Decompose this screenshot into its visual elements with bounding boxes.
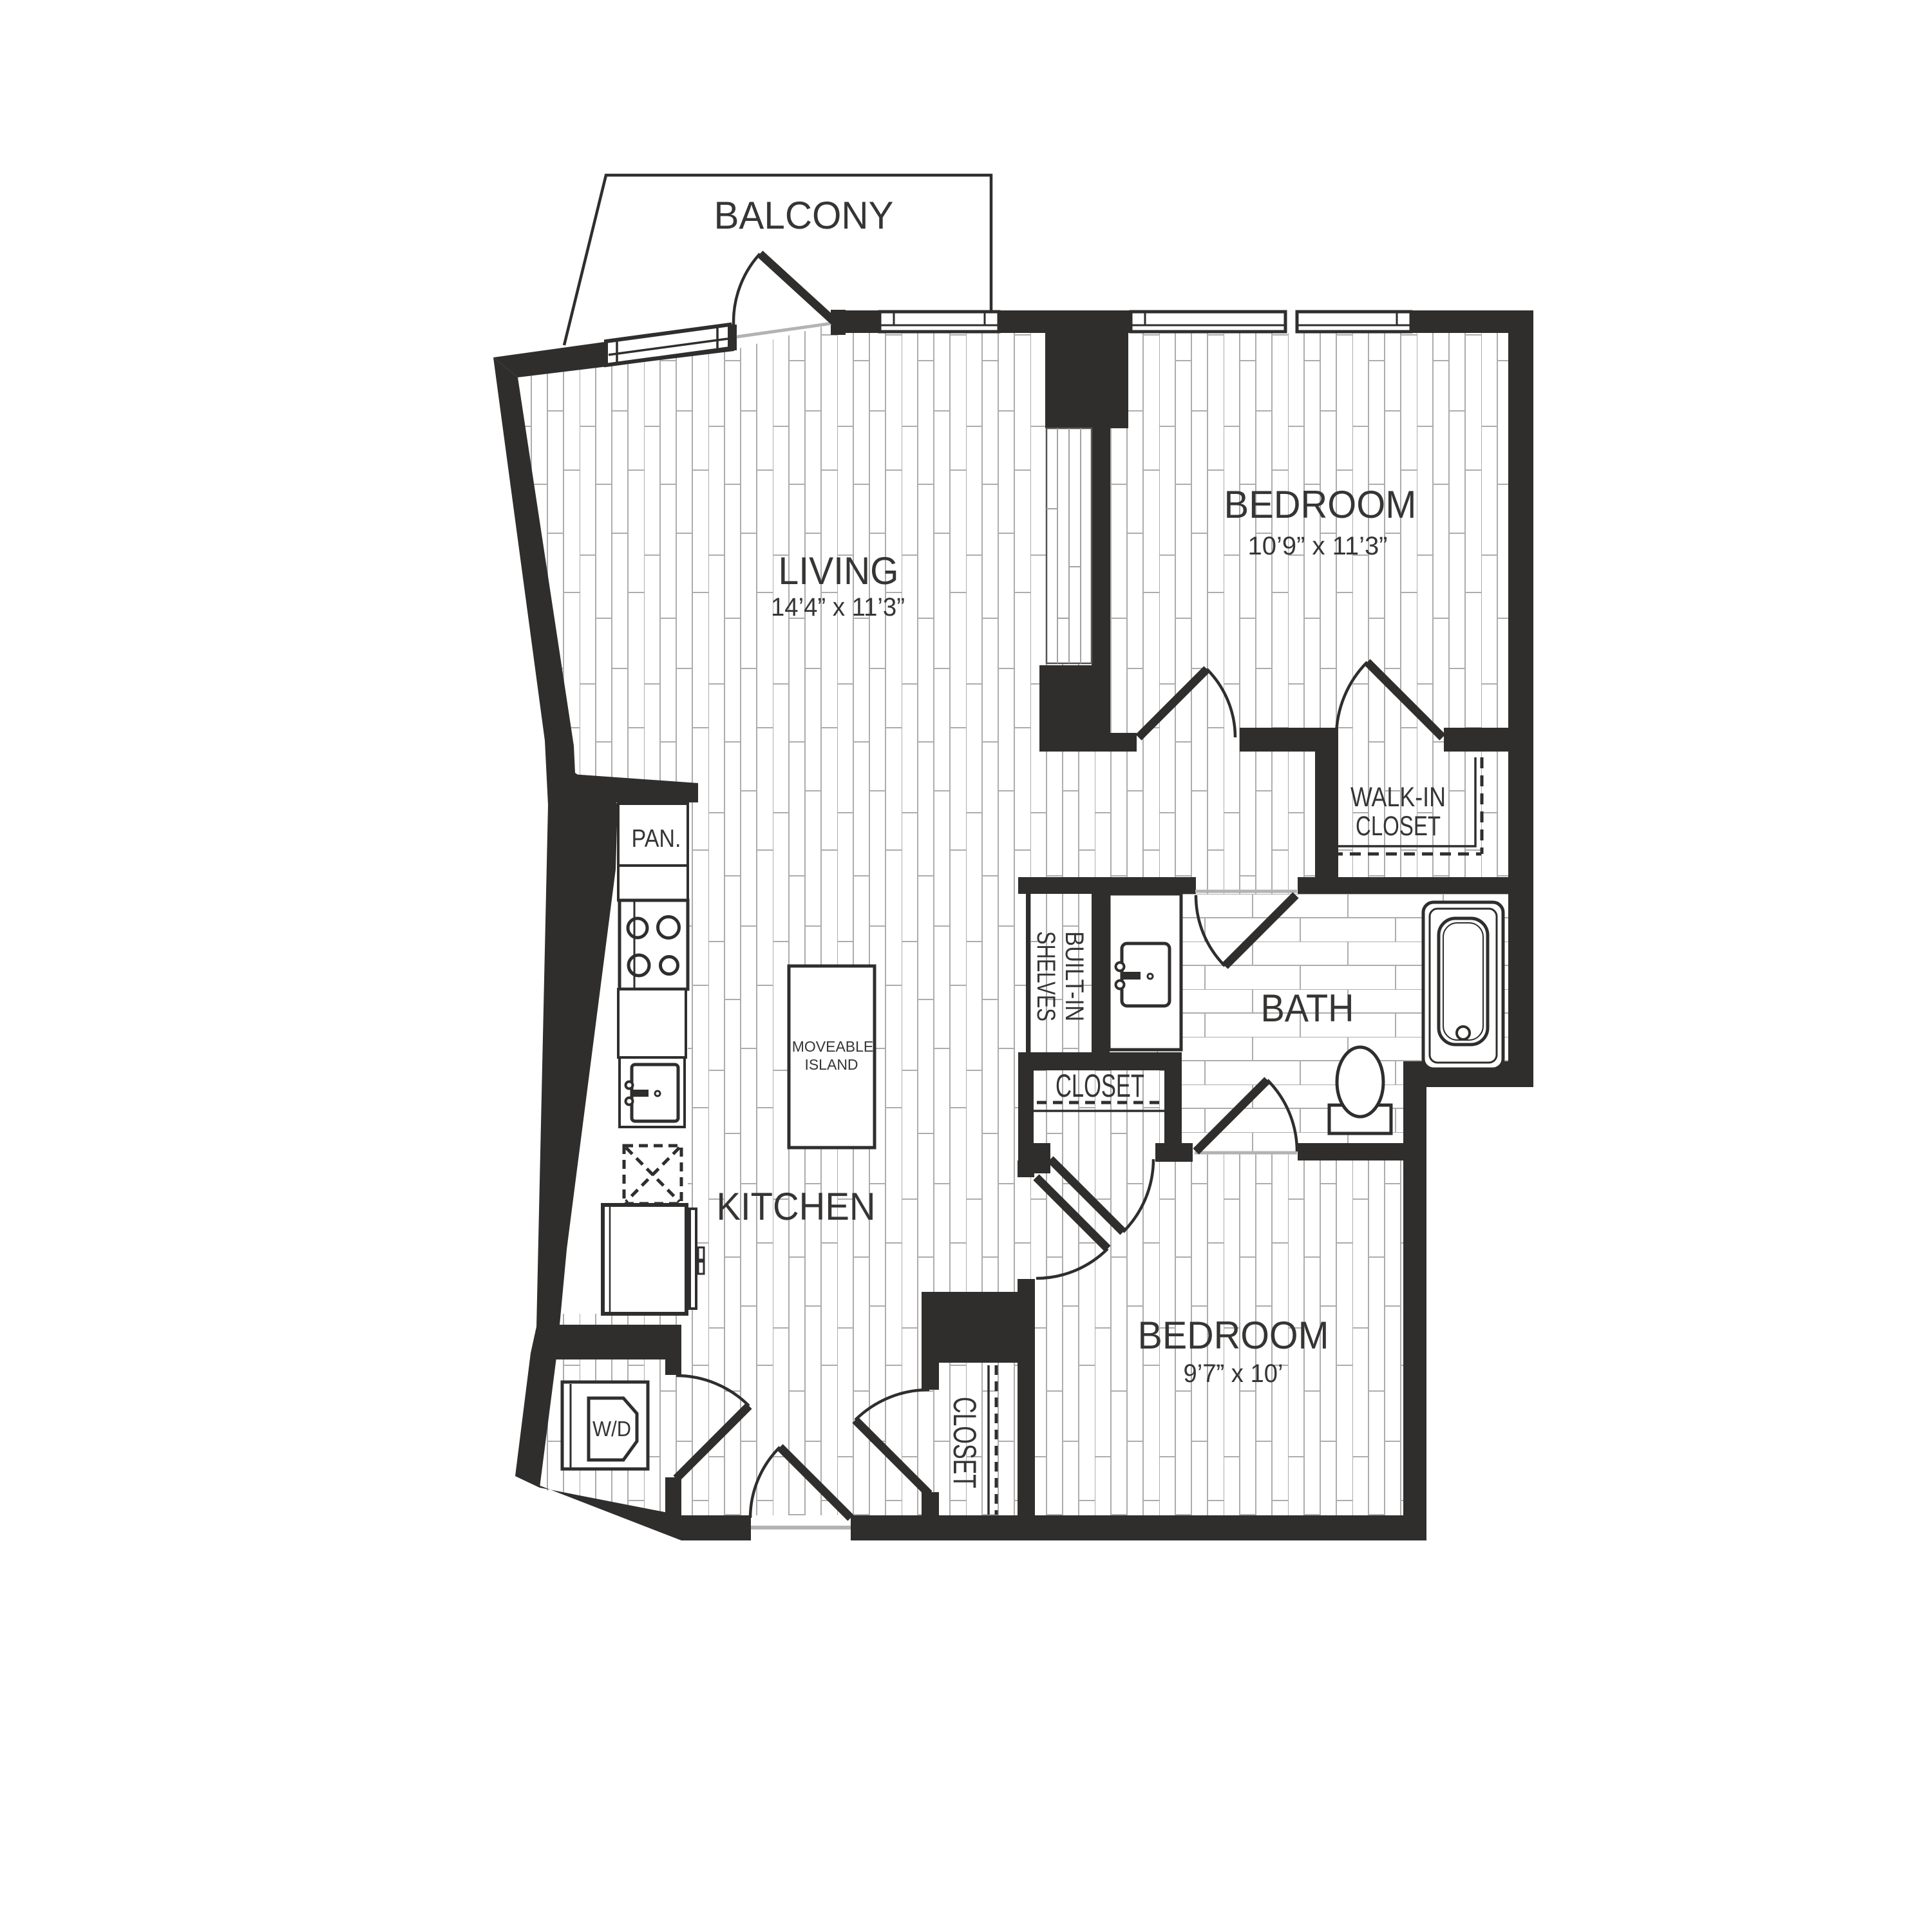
svg-text:BALCONY: BALCONY <box>714 194 894 237</box>
svg-text:14’4” x 11’3”: 14’4” x 11’3” <box>771 593 905 621</box>
svg-text:9’7” x 10’: 9’7” x 10’ <box>1184 1359 1283 1388</box>
svg-text:KITCHEN: KITCHEN <box>717 1185 876 1228</box>
svg-text:CLOSET: CLOSET <box>1056 1068 1144 1104</box>
svg-text:CLOSET: CLOSET <box>947 1397 983 1488</box>
svg-text:ISLAND: ISLAND <box>804 1056 858 1073</box>
svg-text:WALK-IN: WALK-IN <box>1350 782 1446 813</box>
svg-text:SHELVES: SHELVES <box>1032 931 1060 1021</box>
svg-text:10’9” x 11’3”: 10’9” x 11’3” <box>1248 532 1388 560</box>
svg-text:W/D: W/D <box>592 1417 631 1441</box>
svg-text:MOVEABLE: MOVEABLE <box>792 1038 874 1055</box>
svg-text:LIVING: LIVING <box>779 549 899 592</box>
svg-text:PAN.: PAN. <box>632 825 681 853</box>
svg-text:BEDROOM: BEDROOM <box>1224 483 1417 526</box>
svg-text:BEDROOM: BEDROOM <box>1138 1314 1329 1357</box>
svg-text:BATH: BATH <box>1261 987 1354 1030</box>
svg-text:BUILT-IN: BUILT-IN <box>1060 931 1088 1021</box>
svg-text:CLOSET: CLOSET <box>1356 811 1441 842</box>
